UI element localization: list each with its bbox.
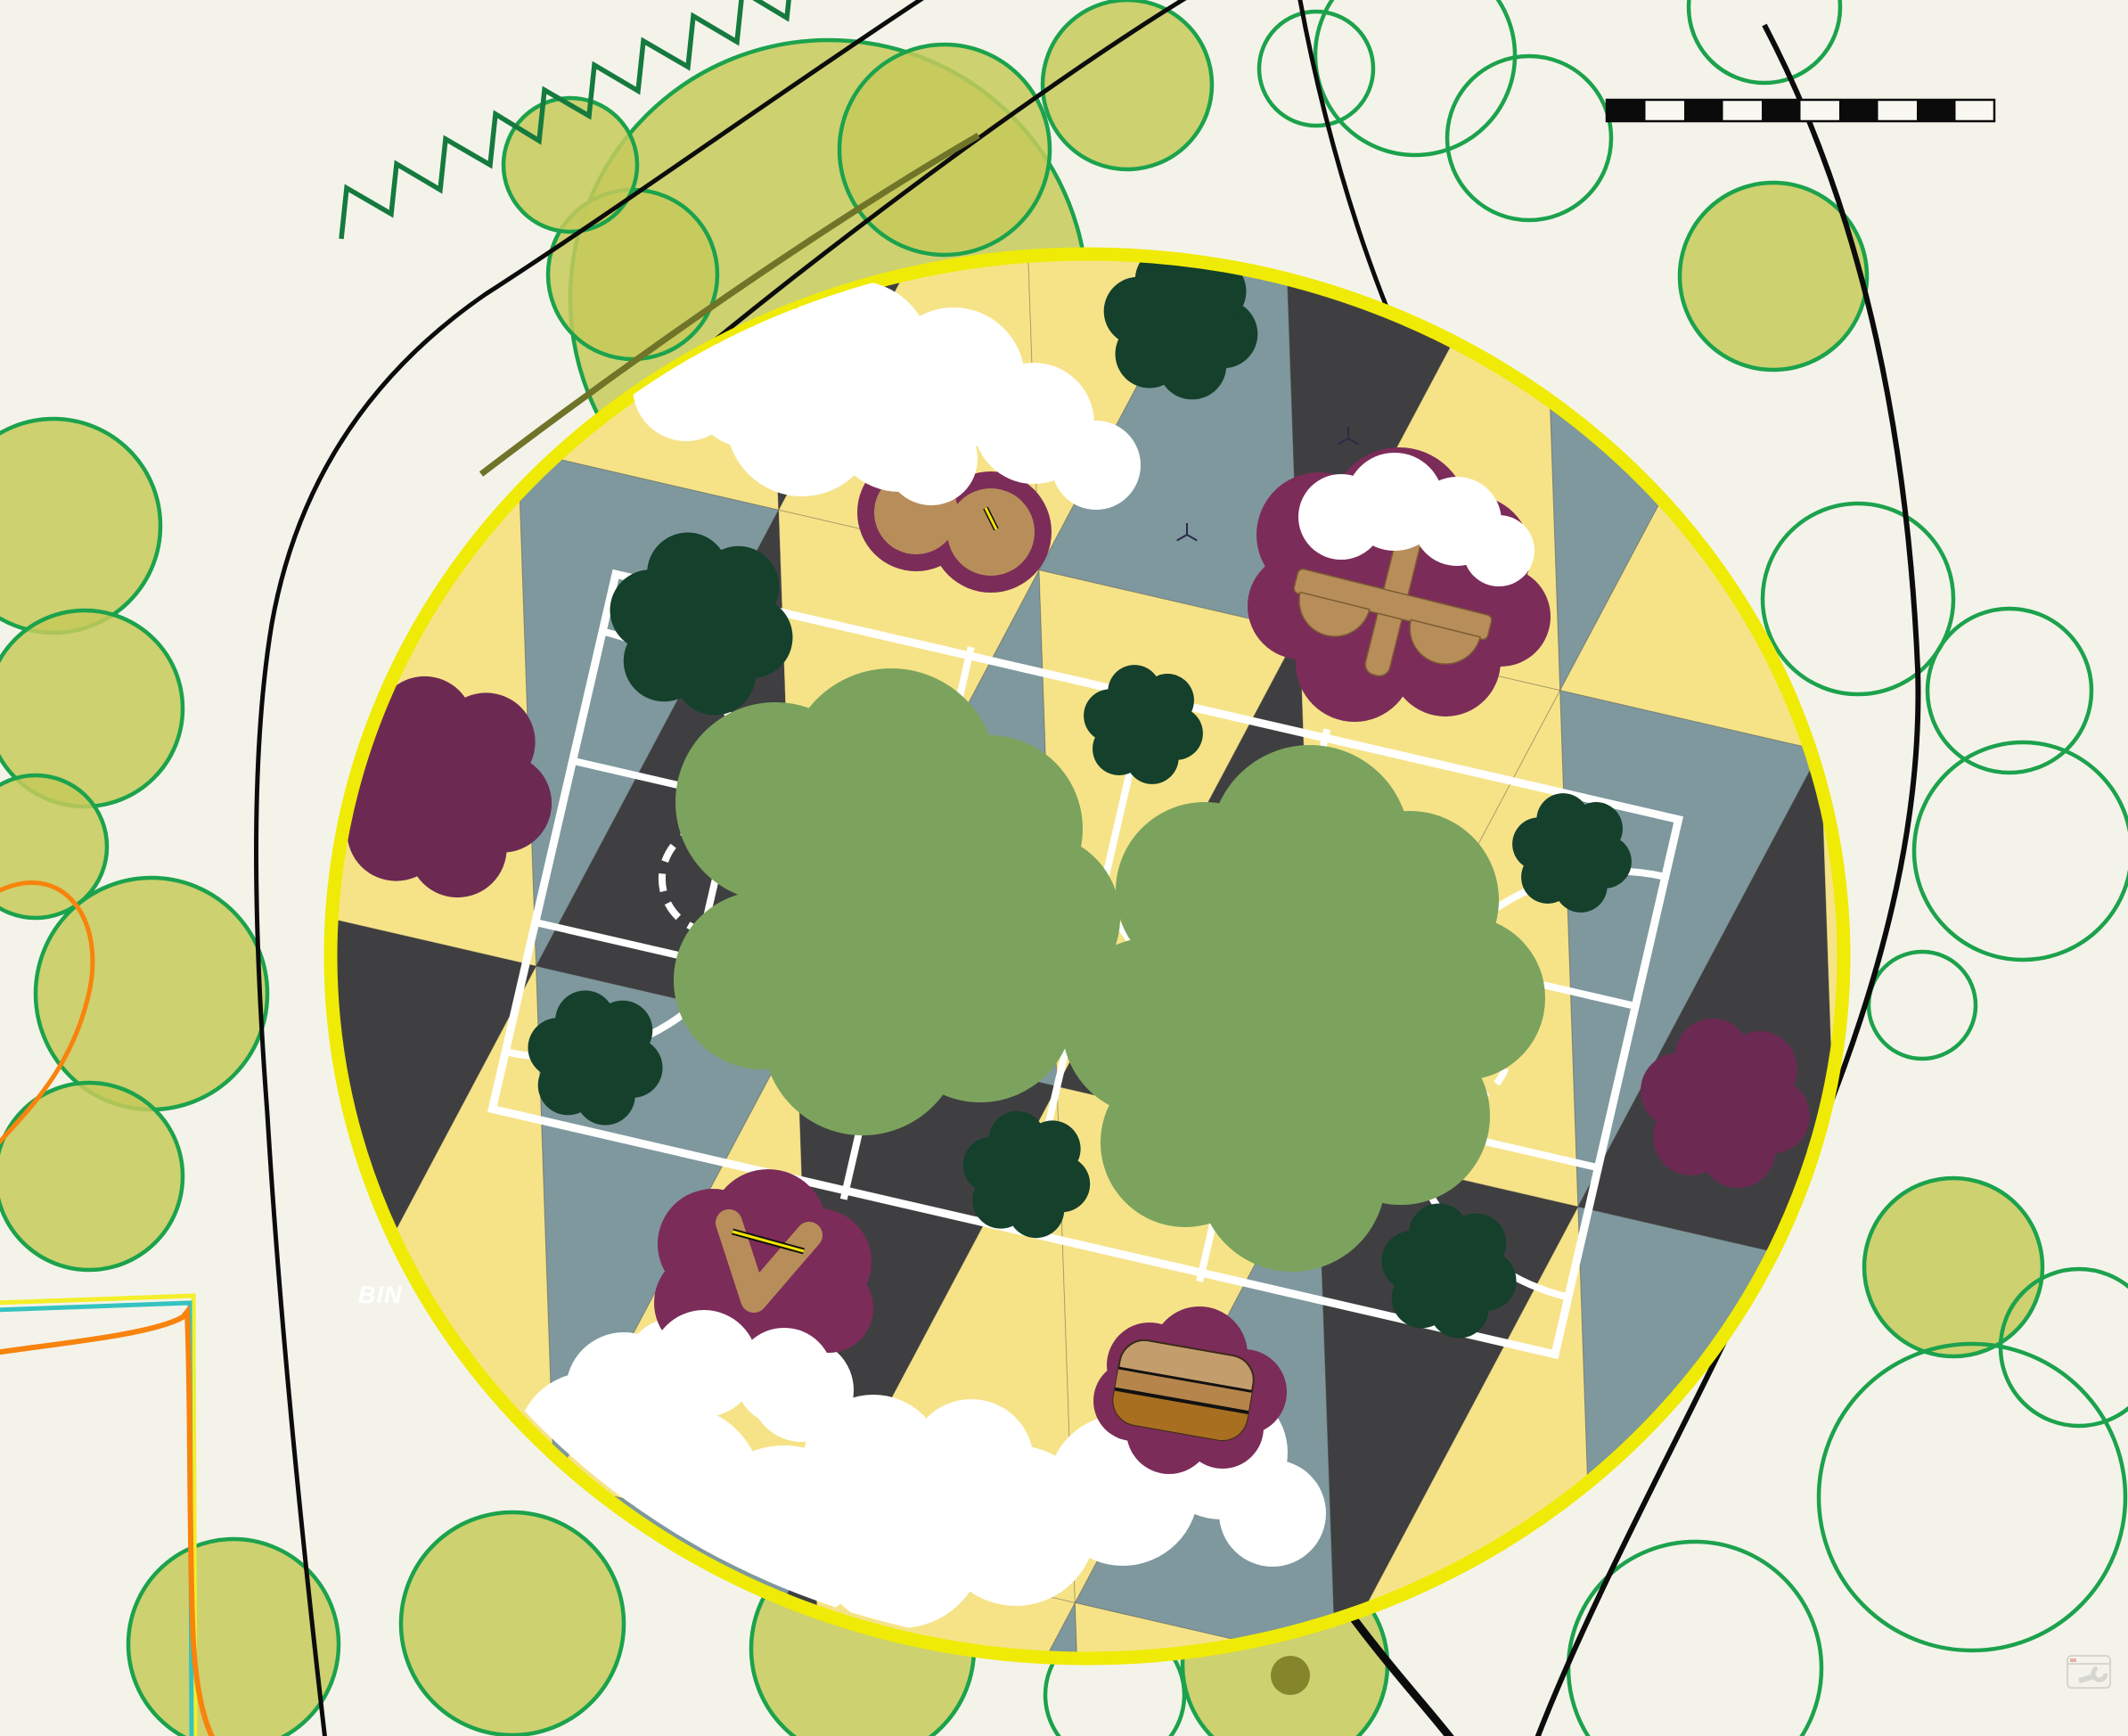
bush-lobe: [1446, 1214, 1506, 1273]
bush-lobe: [698, 546, 779, 627]
sand-cloud-bottom-lobe: [1219, 1460, 1326, 1567]
scale-bar-segment: [1607, 100, 1646, 121]
glasses-right-disc: [947, 488, 1035, 576]
scale-bar-segment: [1723, 100, 1763, 121]
scale-bar-segment: [1878, 100, 1918, 121]
scale-bar-segment: [1956, 100, 1995, 121]
scale-bar-segment: [1917, 100, 1956, 121]
scale-bar-segment: [1684, 100, 1723, 121]
bush-lobe: [593, 1001, 652, 1060]
tree-canopy-left-lobe: [747, 766, 1014, 1034]
purple-tree-right-lobe: [1722, 1031, 1797, 1106]
scale-bar-segment: [1839, 100, 1878, 121]
tree-filled-circle: [401, 1512, 624, 1735]
purple-tree-left-lobe: [437, 692, 535, 790]
scale-bar-segment: [1801, 100, 1840, 121]
sand-patch-lobe: [735, 1328, 833, 1426]
bin-label: BIN: [358, 1282, 403, 1308]
tree-filled-circle: [1864, 1178, 2042, 1356]
tree-filled-circle: [503, 98, 637, 232]
scale-bar-group: [1607, 100, 1994, 121]
tree-trunk-dot: [1271, 1656, 1310, 1695]
icon-red-dot: [2070, 1658, 2076, 1662]
sand-cloud-top-left-lobe: [1052, 421, 1141, 510]
scale-bar-segment: [1646, 100, 1685, 121]
bush-lobe: [1141, 674, 1194, 727]
site-plan-page: BIN: [0, 0, 2128, 1736]
scale-bar-segment: [1762, 100, 1801, 121]
tree-canopy-right-lobe: [1169, 882, 1436, 1150]
bush-lobe: [1569, 802, 1623, 856]
sand-cloud-top-right-lobe: [1463, 515, 1535, 586]
scale-bar: [1607, 100, 1994, 121]
sand-cloud-bottom-lobe: [909, 1399, 1034, 1524]
tree-filled-circle: [36, 878, 267, 1110]
site-plan-drawing: BIN: [0, 0, 2128, 1736]
sand-cloud-top-left-lobe: [885, 413, 978, 505]
bush-lobe: [1024, 1120, 1080, 1176]
tree-filled-circle: [1043, 0, 1212, 169]
tree-filled-circle: [839, 45, 1050, 255]
